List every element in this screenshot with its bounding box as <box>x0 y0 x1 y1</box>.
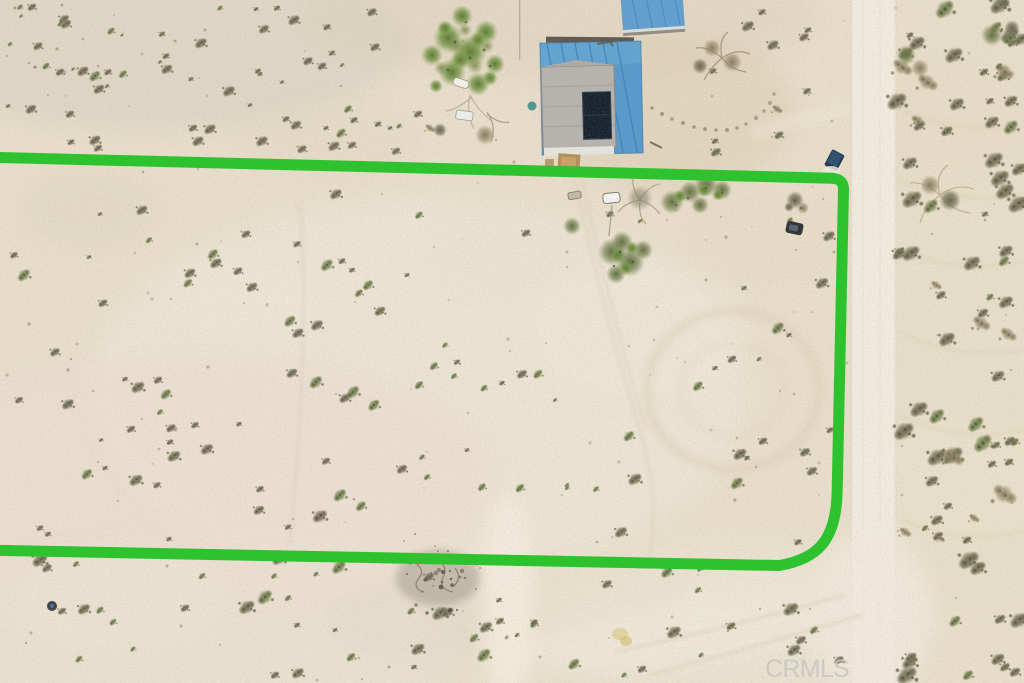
svg-text:CRMLS: CRMLS <box>765 655 849 683</box>
